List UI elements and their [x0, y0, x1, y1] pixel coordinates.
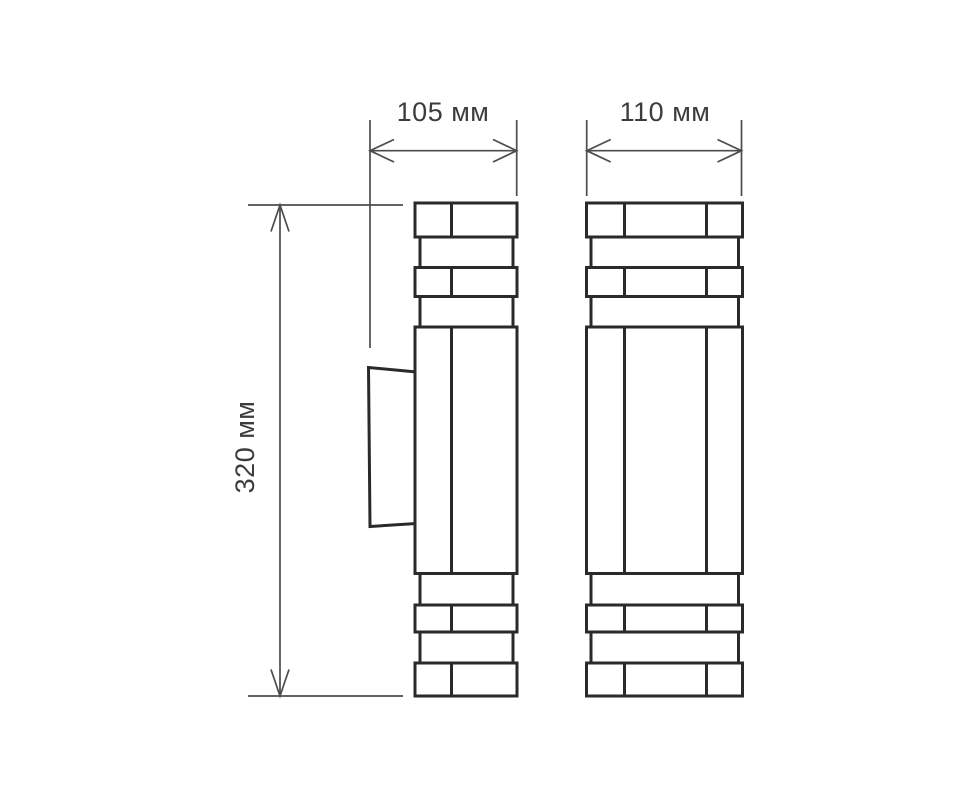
side-view [369, 203, 518, 696]
band [587, 268, 743, 297]
body [415, 327, 517, 574]
band [587, 605, 743, 632]
recess-band [420, 632, 513, 663]
recess-band [591, 632, 739, 663]
wall-bracket [369, 368, 417, 527]
recess-band [591, 237, 739, 268]
recess-band [420, 237, 513, 268]
side-width-label: 105 мм [397, 97, 490, 127]
recess-band [591, 297, 739, 328]
top-cap [415, 203, 517, 237]
luminaire-dimension-drawing: 105 мм 110 мм 320 мм [0, 0, 978, 800]
recess-band [420, 574, 513, 606]
drawing-canvas: 105 мм 110 мм 320 мм [0, 0, 978, 800]
bottom-cap [587, 663, 743, 696]
recess-band [420, 297, 513, 328]
height-label: 320 мм [230, 401, 260, 494]
top-cap [587, 203, 743, 237]
band [415, 268, 517, 297]
dimension-front-width [587, 120, 742, 196]
front-width-label: 110 мм [620, 97, 711, 127]
body [587, 327, 743, 574]
band [415, 605, 517, 632]
bottom-cap [415, 663, 517, 696]
front-view [587, 203, 743, 696]
recess-band [591, 574, 739, 606]
